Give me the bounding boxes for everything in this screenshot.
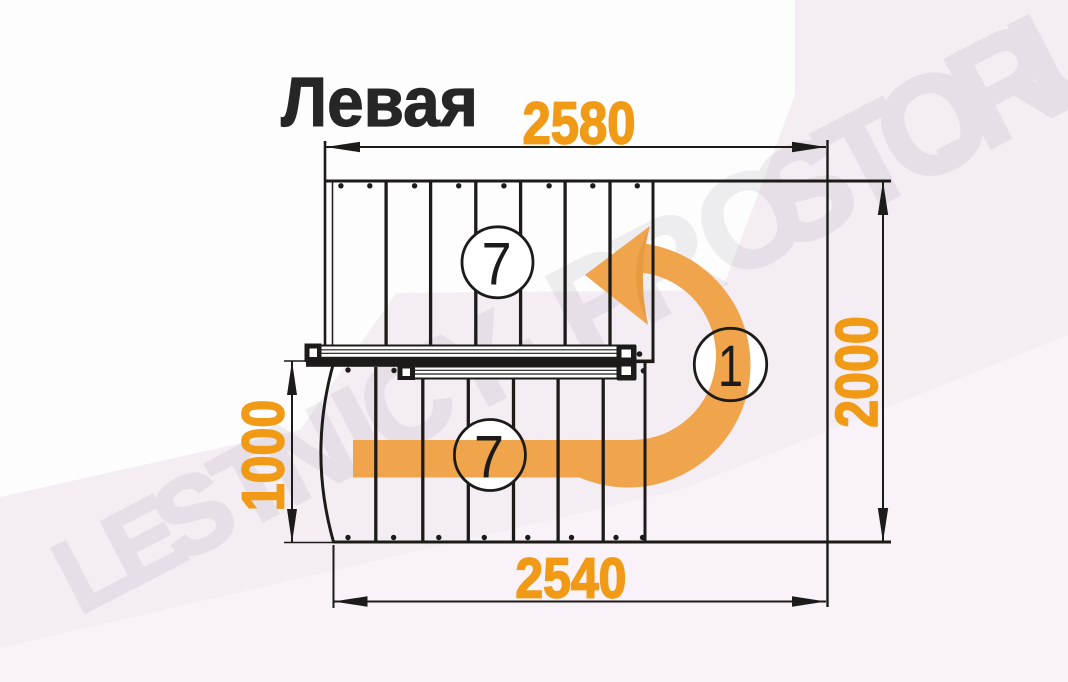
svg-text:1: 1	[718, 334, 743, 399]
svg-text:Левая: Левая	[281, 63, 478, 141]
svg-text:2580: 2580	[523, 91, 636, 157]
svg-text:1000: 1000	[231, 400, 297, 512]
svg-text:2540: 2540	[515, 547, 626, 611]
svg-text:7: 7	[474, 424, 504, 491]
svg-text:2000: 2000	[824, 316, 890, 428]
svg-text:7: 7	[482, 231, 512, 298]
